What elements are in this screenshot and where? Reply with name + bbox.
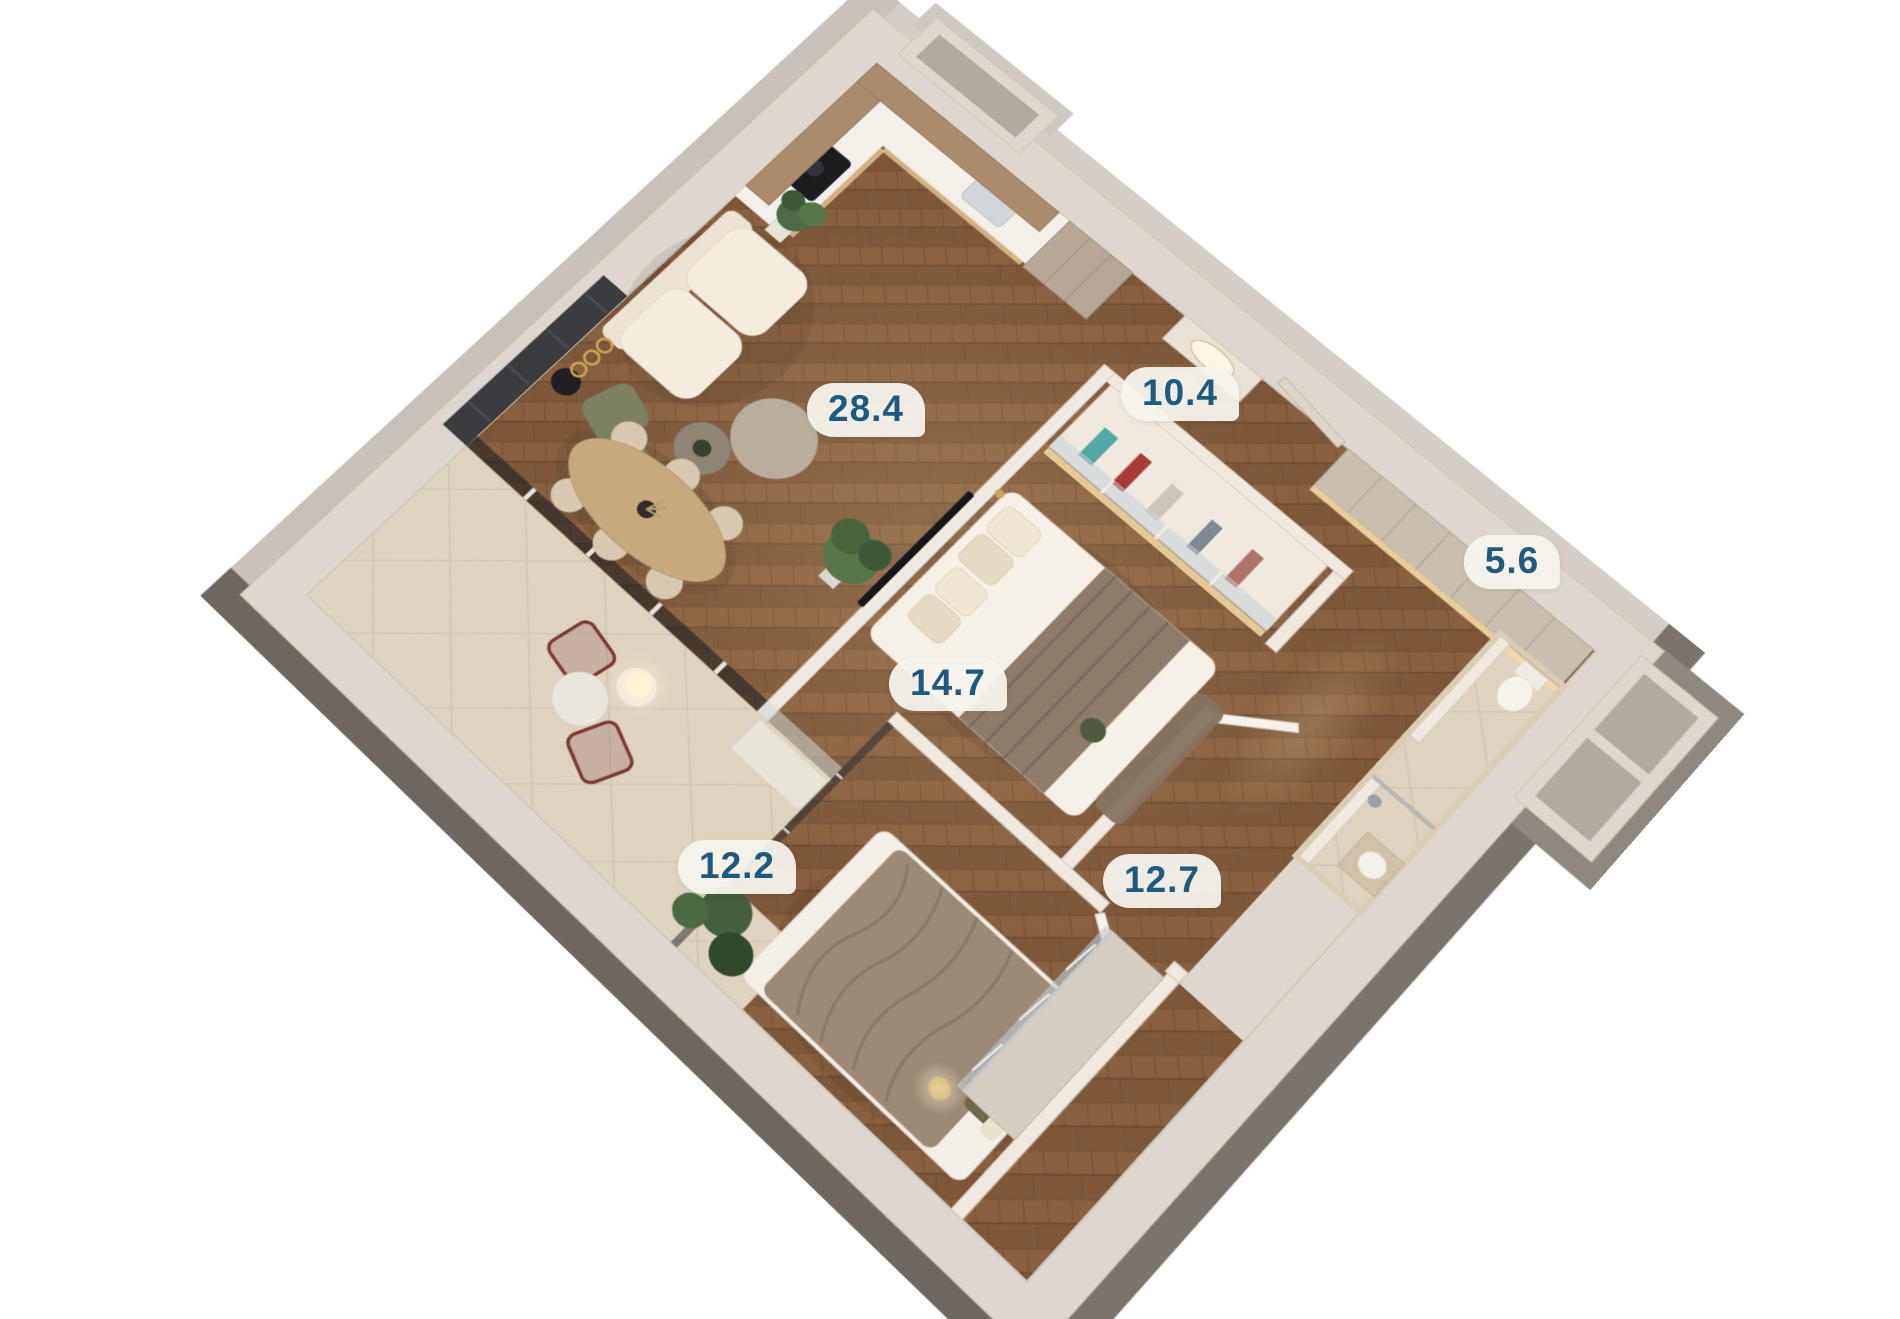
area-label-living-kitchen: 28.4 — [807, 383, 925, 437]
area-label-bathroom: 5.6 — [1464, 535, 1560, 589]
area-label-bedroom-main: 14.7 — [889, 657, 1007, 711]
area-label-terrace: 12.2 — [678, 840, 796, 894]
floor-plan-page: 28.4 10.4 5.6 14.7 12.2 12.7 — [0, 0, 1900, 1319]
area-label-bedroom-second: 12.7 — [1103, 854, 1221, 908]
area-label-hallway: 10.4 — [1121, 367, 1239, 421]
